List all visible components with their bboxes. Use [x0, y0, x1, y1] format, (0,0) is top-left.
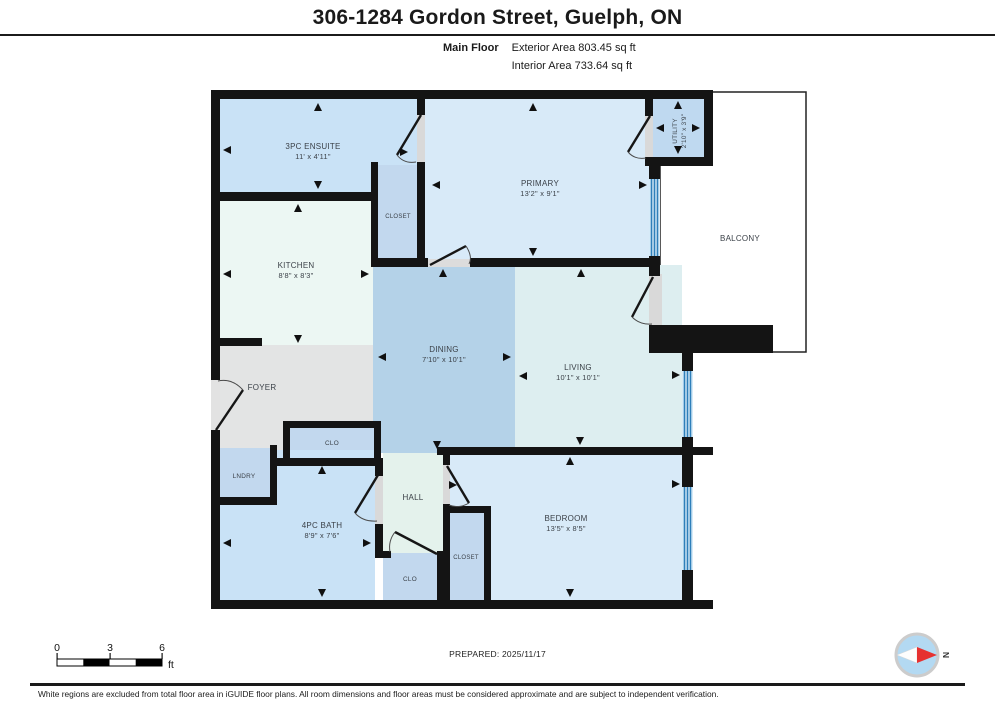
dims-bedroom: 13'5" x 8'5"	[546, 524, 586, 533]
floorplan-page: 306-1284 Gordon Street, Guelph, ON Main …	[0, 0, 995, 720]
label-bath: 4PC BATH	[302, 521, 343, 530]
label-living: LIVING	[564, 363, 592, 372]
disclaimer-text: White regions are excluded from total fl…	[38, 689, 719, 699]
dims-ensuite: 11' x 4'11"	[295, 152, 331, 161]
dims-dining: 7'10" x 10'1"	[422, 355, 466, 364]
floorplan-canvas: 3PC ENSUITE 11' x 4'11" CLOSET PRIMARY 1…	[0, 0, 995, 720]
label-kitchen: KITCHEN	[278, 261, 315, 270]
label-utility: UTILITY	[672, 118, 679, 144]
dims-bath: 8'9" x 7'6"	[304, 531, 339, 540]
label-closet-ensuite: CLOSET	[385, 214, 411, 220]
label-clo-foyer: CLO	[325, 440, 339, 447]
window-primary	[649, 179, 660, 256]
window-living	[682, 371, 693, 437]
label-ensuite: 3PC ENSUITE	[285, 142, 340, 151]
label-balcony: BALCONY	[720, 234, 760, 243]
dims-living: 10'1" x 10'1"	[556, 373, 600, 382]
dims-primary: 13'2" x 9'1"	[520, 189, 560, 198]
label-dining: DINING	[429, 345, 459, 354]
label-closet-bedroom: CLOSET	[453, 555, 479, 561]
label-hall: HALL	[402, 493, 423, 502]
prepared-date: PREPARED: 2025/11/17	[0, 649, 995, 659]
room-fill-hall	[383, 453, 443, 553]
room-fills	[218, 99, 704, 605]
footer-divider	[30, 683, 965, 686]
label-primary: PRIMARY	[521, 179, 559, 188]
room-fill-closet-ensuite	[378, 165, 417, 258]
dims-kitchen: 8'8" x 8'3"	[278, 271, 313, 280]
label-foyer: FOYER	[248, 383, 277, 392]
scale-unit: ft	[168, 659, 174, 671]
dims-utility: 2'10" x 3'9"	[681, 114, 688, 149]
label-bedroom: BEDROOM	[544, 514, 587, 523]
window-bedroom	[682, 487, 693, 570]
label-clo-hall: CLO	[403, 576, 417, 583]
label-lndry: LNDRY	[233, 473, 256, 480]
